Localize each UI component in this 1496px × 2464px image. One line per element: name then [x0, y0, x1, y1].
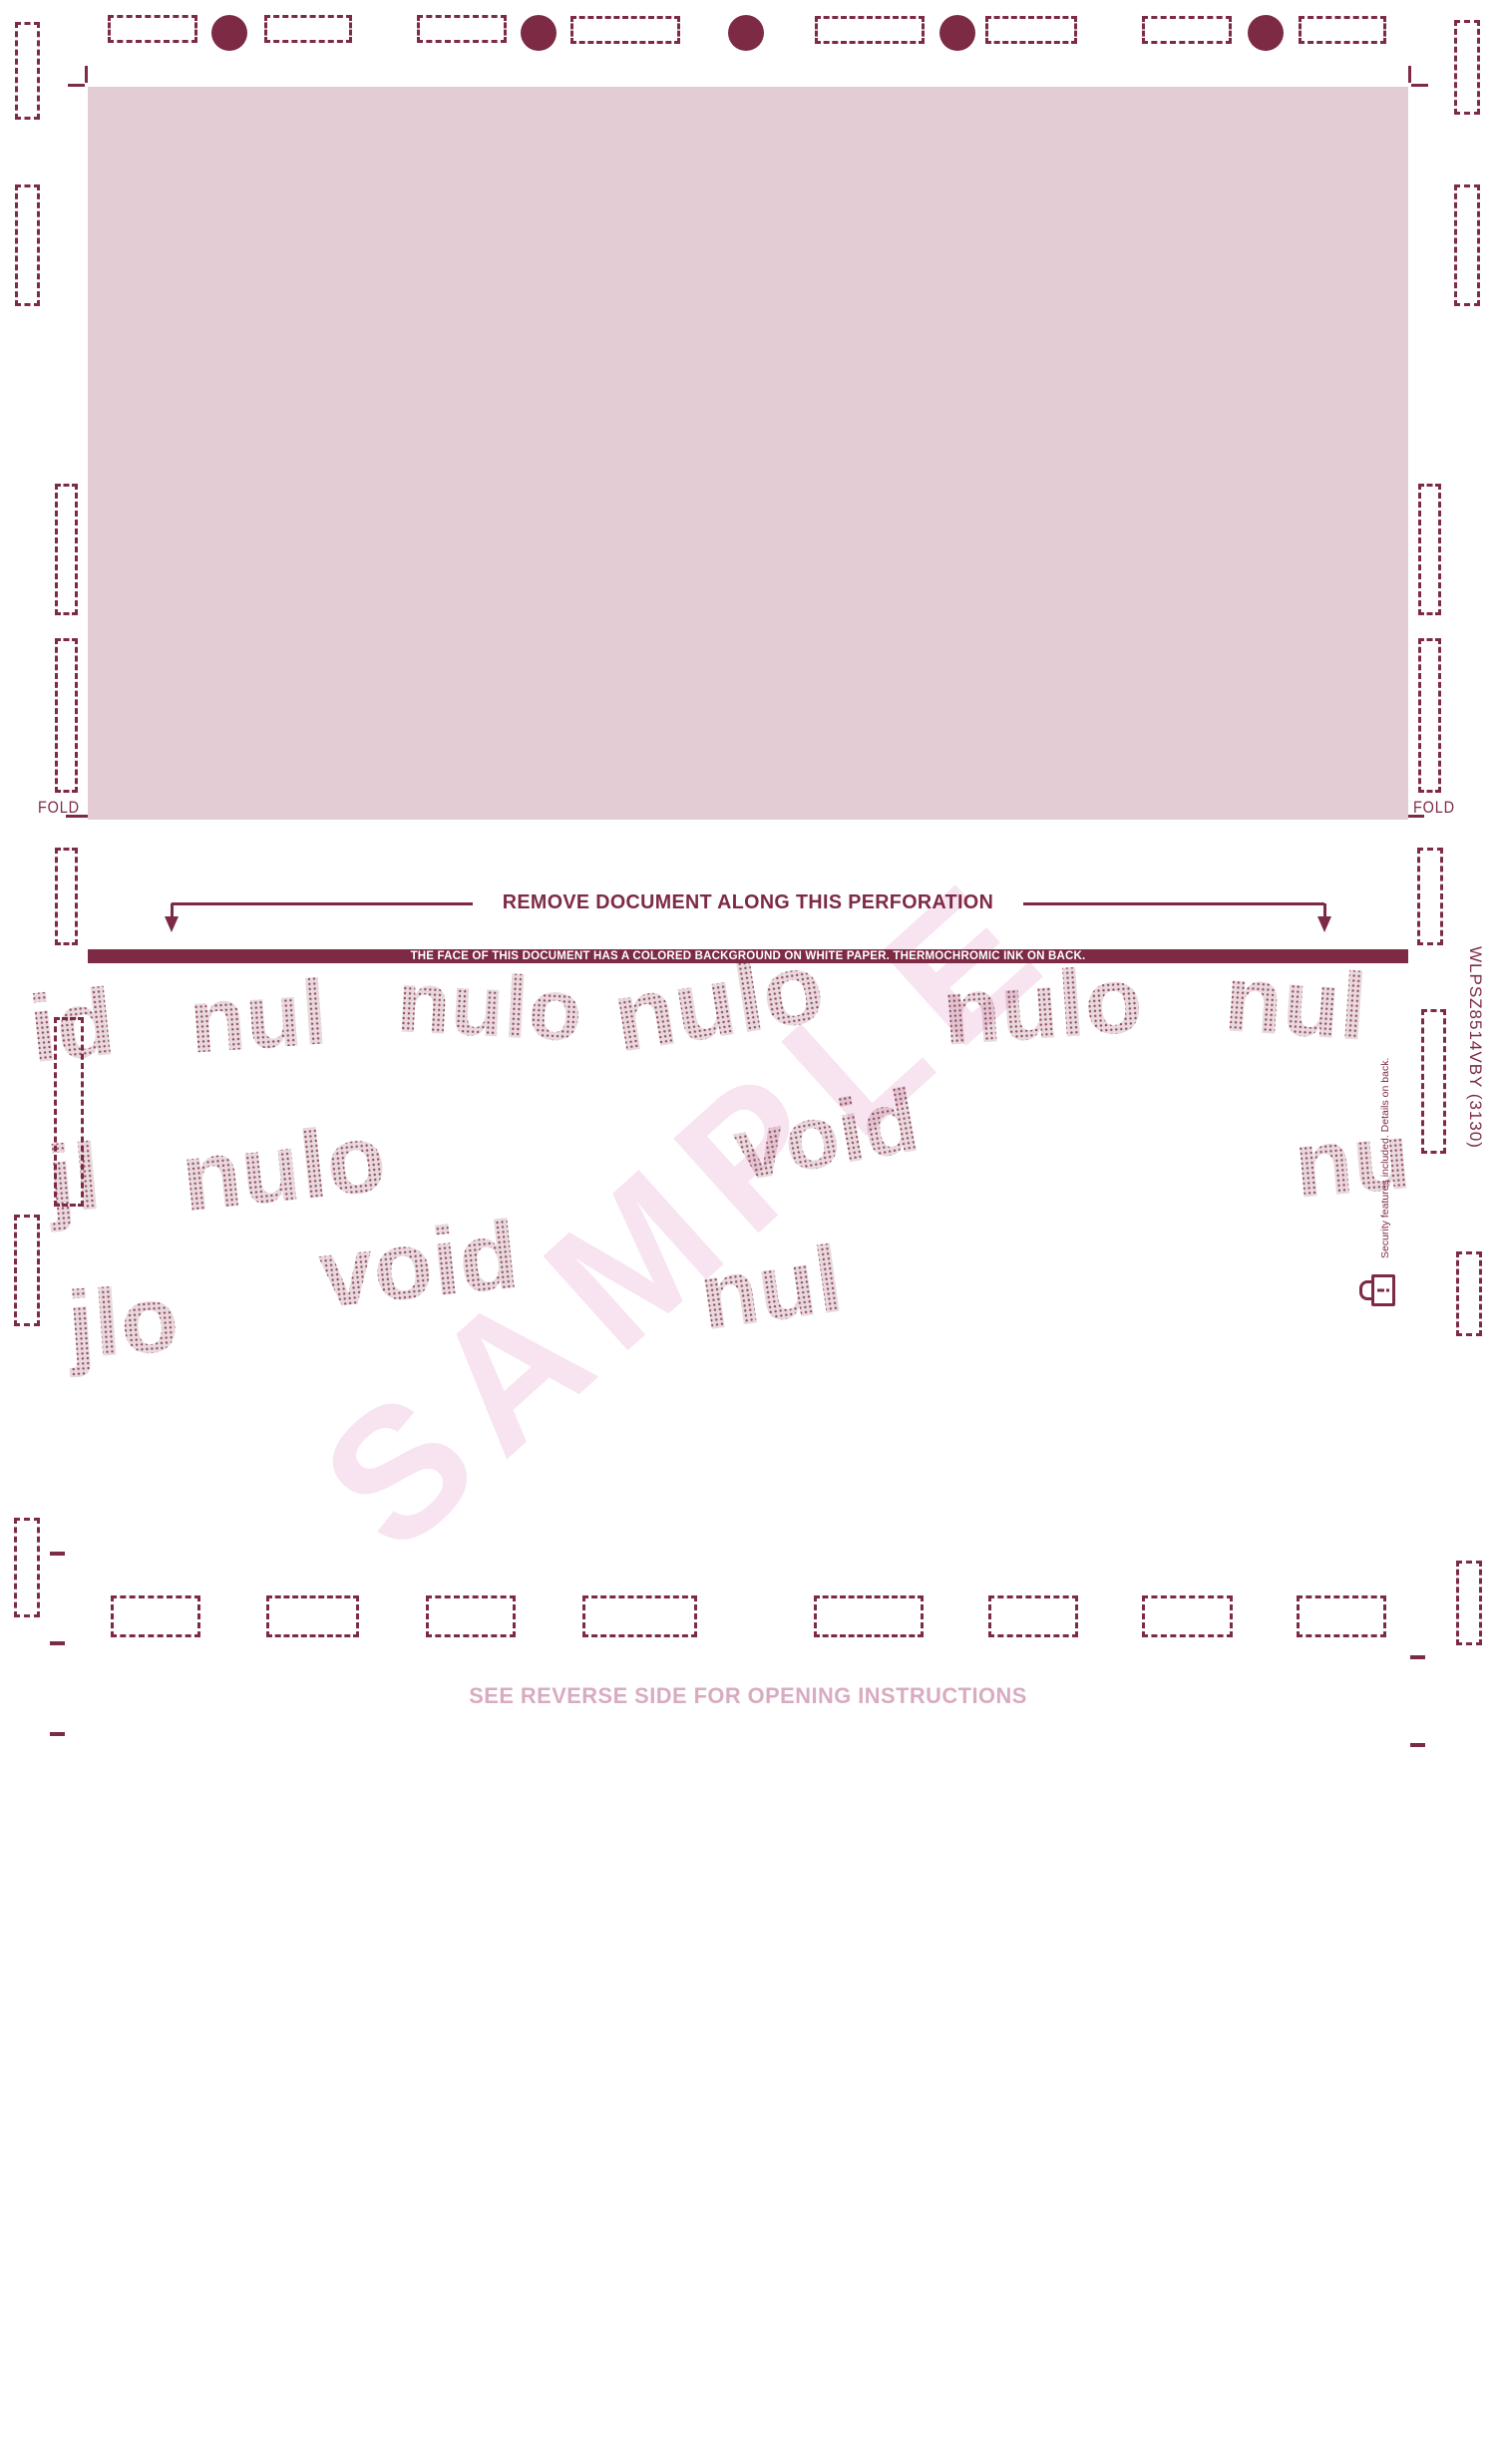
opening-instructions-text: SEE REVERSE SIDE FOR OPENING INSTRUCTION…: [469, 1683, 1027, 1709]
perforation-arrow-stem: [1323, 903, 1326, 917]
void-pantograph-word: nulo: [938, 945, 1146, 1068]
perforation-arrow-stem: [171, 903, 174, 917]
edge-bracket-mark: [14, 1215, 40, 1326]
fold-label-left: FOLD: [38, 798, 80, 818]
padlock-icon: [1359, 1272, 1395, 1308]
edge-bracket-mark: [15, 22, 40, 120]
perforation-rule-line: [1023, 902, 1324, 905]
top-perforation-rect: [1299, 16, 1386, 44]
edge-bracket-mark: [1418, 484, 1441, 615]
security-features-note: Security features included. Details on b…: [1379, 1058, 1391, 1258]
padlock-exclamation: [1377, 1289, 1384, 1292]
edge-bracket-mark: [1456, 1561, 1482, 1645]
top-seal-dot: [728, 15, 764, 51]
bottom-perforation-rect: [1142, 1595, 1233, 1637]
top-seal-dot: [939, 15, 975, 51]
top-seal-dot: [1248, 15, 1284, 51]
void-pantograph-word: void: [314, 1199, 524, 1330]
edge-dash-mark: [1410, 1743, 1425, 1747]
void-pantograph-word: nulo: [394, 950, 584, 1062]
bottom-perforation-rect: [111, 1595, 200, 1637]
edge-bracket-mark: [55, 848, 78, 945]
edge-dash-mark: [50, 1732, 65, 1736]
bottom-perforation-rect: [266, 1595, 359, 1637]
thermochromic-notice-text: THE FACE OF THIS DOCUMENT HAS A COLORED …: [411, 950, 1086, 962]
edge-bracket-mark: [1454, 20, 1480, 115]
padlock-shackle: [1359, 1280, 1371, 1300]
edge-bracket-mark: [55, 484, 78, 615]
pressure-seal-check-form: SAMPLE FOLD FOLD REMOVE DOCUMENT ALONG T…: [0, 0, 1496, 2464]
edge-bracket-mark: [1454, 184, 1480, 306]
panel-corner-tick: [1408, 66, 1411, 83]
panel-corner-tick: [1411, 84, 1428, 87]
perforation-rule-line: [172, 902, 473, 905]
edge-dash-mark: [50, 1641, 65, 1645]
top-perforation-rect: [264, 15, 352, 43]
edge-bracket-mark: [1417, 848, 1443, 945]
panel-corner-tick: [85, 66, 88, 83]
void-pantograph-word: nul: [187, 960, 331, 1074]
top-perforation-rect: [985, 16, 1077, 44]
top-perforation-rect: [1142, 16, 1232, 44]
thermochromic-notice-bar: THE FACE OF THIS DOCUMENT HAS A COLORED …: [88, 949, 1408, 963]
edge-bracket-mark: [14, 1518, 40, 1617]
void-pantograph-word: jl: [43, 1123, 105, 1235]
top-perforation-rect: [815, 16, 925, 44]
fold-label-right: FOLD: [1413, 798, 1455, 818]
bottom-perforation-rect: [582, 1595, 697, 1637]
edge-dash-mark: [50, 1552, 65, 1556]
form-part-number: WLPSZ8514VBY (3130): [1465, 946, 1485, 1149]
panel-corner-tick: [68, 84, 85, 87]
edge-bracket-mark: [1456, 1251, 1482, 1336]
void-pantograph-word: nul: [693, 1226, 849, 1353]
top-perforation-rect: [417, 15, 507, 43]
void-pantograph-word: jlo: [64, 1264, 182, 1380]
top-perforation-rect: [570, 16, 680, 44]
top-seal-dot: [211, 15, 247, 51]
check-background-panel: [88, 87, 1408, 820]
edge-bracket-mark: [1421, 1009, 1446, 1154]
bottom-perforation-rect: [814, 1595, 924, 1637]
void-pantograph-word: id: [25, 968, 120, 1085]
perforation-title: REMOVE DOCUMENT ALONG THIS PERFORATION: [503, 890, 993, 914]
top-seal-dot: [521, 15, 557, 51]
bottom-perforation-rect: [988, 1595, 1078, 1637]
perforation-arrow-icon: [1317, 916, 1331, 932]
edge-dash-mark: [1410, 1655, 1425, 1659]
bottom-perforation-rect: [426, 1595, 516, 1637]
bottom-perforation-rect: [1297, 1595, 1386, 1637]
padlock-body: [1371, 1274, 1395, 1306]
edge-bracket-mark: [55, 638, 78, 793]
top-perforation-rect: [108, 15, 197, 43]
void-pantograph-word: nu: [1290, 1102, 1414, 1221]
edge-bracket-mark: [15, 184, 40, 306]
edge-bracket-mark: [1418, 638, 1441, 793]
perforation-arrow-icon: [165, 916, 179, 932]
